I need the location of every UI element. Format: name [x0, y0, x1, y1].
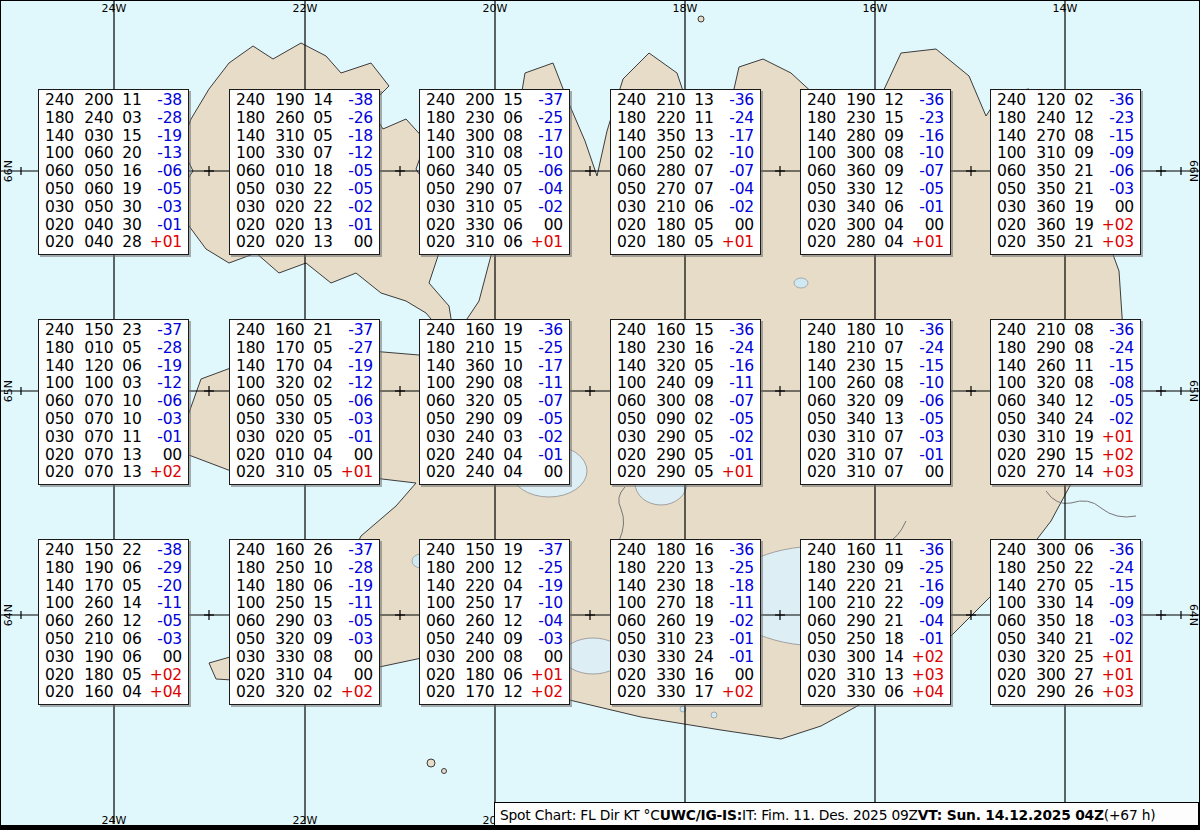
temperature-c: -24 — [720, 110, 754, 128]
wind-direction: 070 — [82, 393, 113, 411]
wind-direction: 270 — [1034, 128, 1065, 146]
flight-level: 020 — [45, 667, 76, 685]
flight-level: 140 — [45, 358, 76, 376]
level-row: 03031007-03 — [807, 429, 944, 447]
level-row: 14022004-19 — [426, 578, 563, 596]
wind-direction: 180 — [273, 578, 304, 596]
level-row: 24018010-36 — [807, 322, 944, 340]
temperature-c: -27 — [339, 340, 373, 358]
temperature-c: -15 — [1100, 358, 1134, 376]
temperature-c: -10 — [910, 375, 944, 393]
wind-direction: 200 — [463, 560, 494, 578]
wind-speed-kt: 13 — [311, 234, 333, 252]
flight-level: 050 — [236, 631, 267, 649]
flight-level: 180 — [236, 110, 267, 128]
wind-direction: 240 — [654, 375, 685, 393]
wind-direction: 300 — [844, 145, 875, 163]
wind-direction: 190 — [273, 92, 304, 110]
wind-direction: 230 — [844, 358, 875, 376]
wind-speed-kt: 28 — [120, 234, 142, 252]
wind-speed-kt: 06 — [692, 199, 714, 217]
level-row: 02029005-01 — [617, 447, 754, 465]
level-row: 03024003-02 — [426, 429, 563, 447]
temperature-c: -02 — [1100, 411, 1134, 429]
wind-direction: 220 — [654, 110, 685, 128]
wind-direction: 210 — [463, 340, 494, 358]
spot-chart-canvas: 24W24W22W22W20W20W18W18W16W16W14W14W66N6… — [0, 0, 1200, 830]
station-table-r1c5: 24019012-3618023015-2314028009-161003000… — [800, 89, 951, 255]
temperature-c: -02 — [720, 613, 754, 631]
flight-level: 020 — [997, 217, 1028, 235]
wind-direction: 160 — [844, 542, 875, 560]
temperature-c: +03 — [1100, 234, 1134, 252]
wind-speed-kt: 26 — [311, 542, 333, 560]
wind-speed-kt: 10 — [501, 358, 523, 376]
wind-direction: 310 — [273, 667, 304, 685]
wind-speed-kt: 05 — [692, 464, 714, 482]
temperature-c: -01 — [720, 649, 754, 667]
wind-speed-kt: 06 — [120, 649, 142, 667]
level-row: 18024012-23 — [997, 110, 1134, 128]
level-row: 18022013-25 — [617, 560, 754, 578]
flight-level: 240 — [807, 322, 838, 340]
wind-direction: 160 — [273, 322, 304, 340]
level-row: 06005005-06 — [236, 393, 373, 411]
level-row: 02029026+03 — [997, 684, 1134, 702]
flight-level: 140 — [807, 128, 838, 146]
temperature-c: -38 — [148, 92, 182, 110]
flight-level: 020 — [807, 234, 838, 252]
level-row: 14023018-18 — [617, 578, 754, 596]
wind-speed-kt: 10 — [120, 393, 142, 411]
wind-speed-kt: 03 — [120, 375, 142, 393]
wind-speed-kt: 14 — [120, 595, 142, 613]
wind-speed-kt: 07 — [311, 145, 333, 163]
level-row: 03033024-01 — [617, 649, 754, 667]
flight-level: 240 — [997, 542, 1028, 560]
flight-level: 240 — [236, 322, 267, 340]
flight-level: 030 — [807, 649, 838, 667]
flight-level: 140 — [426, 128, 457, 146]
wind-speed-kt: 09 — [501, 631, 523, 649]
flight-level: 100 — [617, 595, 648, 613]
flight-level: 020 — [807, 684, 838, 702]
level-row: 14003015-19 — [45, 128, 182, 146]
wind-direction: 210 — [844, 595, 875, 613]
level-row: 10026014-11 — [45, 595, 182, 613]
wind-direction: 180 — [654, 234, 685, 252]
temperature-c: -36 — [720, 542, 754, 560]
flight-level: 060 — [45, 163, 76, 181]
flight-level: 030 — [236, 199, 267, 217]
temperature-c: -15 — [1100, 128, 1134, 146]
wind-speed-kt: 21 — [1072, 163, 1094, 181]
level-row: 0200201300 — [236, 234, 373, 252]
level-row: 02024004-01 — [426, 447, 563, 465]
flight-level: 020 — [426, 684, 457, 702]
flight-level: 140 — [997, 358, 1028, 376]
wind-speed-kt: 12 — [501, 613, 523, 631]
wind-speed-kt: 13 — [882, 411, 904, 429]
wind-direction: 300 — [463, 128, 494, 146]
flight-level: 020 — [426, 464, 457, 482]
temperature-c: -23 — [1100, 110, 1134, 128]
level-row: 24015022-38 — [45, 542, 182, 560]
temperature-c: +01 — [529, 667, 563, 685]
wind-direction: 180 — [82, 667, 113, 685]
temperature-c: -36 — [1100, 542, 1134, 560]
wind-direction: 330 — [1034, 595, 1065, 613]
wind-speed-kt: 02 — [692, 411, 714, 429]
level-row: 10030008-10 — [807, 145, 944, 163]
wind-speed-kt: 07 — [882, 447, 904, 465]
station-table-r1c3: 24020015-3718023006-2514030008-171003100… — [419, 89, 570, 255]
wind-speed-kt: 21 — [882, 613, 904, 631]
latitude-label-left: 66N — [3, 156, 15, 186]
level-row: 24016019-36 — [426, 322, 563, 340]
level-row: 05031023-01 — [617, 631, 754, 649]
wind-direction: 290 — [654, 429, 685, 447]
wind-direction: 160 — [82, 684, 113, 702]
flight-level: 240 — [617, 542, 648, 560]
temperature-c: -16 — [910, 578, 944, 596]
wind-direction: 200 — [463, 92, 494, 110]
level-row: 24016011-36 — [807, 542, 944, 560]
wind-speed-kt: 07 — [692, 163, 714, 181]
wind-direction: 290 — [654, 447, 685, 465]
level-row: 18021015-25 — [426, 340, 563, 358]
level-row: 18001005-28 — [45, 340, 182, 358]
bottom-border-strip — [1, 825, 1199, 829]
flight-level: 140 — [236, 358, 267, 376]
level-row: 05034013-05 — [807, 411, 944, 429]
flight-level: 050 — [45, 181, 76, 199]
flight-level: 020 — [997, 234, 1028, 252]
wind-direction: 290 — [654, 464, 685, 482]
wind-speed-kt: 21 — [882, 578, 904, 596]
flight-level: 020 — [236, 684, 267, 702]
wind-direction: 330 — [654, 667, 685, 685]
temperature-c: -25 — [720, 560, 754, 578]
flight-level: 240 — [236, 542, 267, 560]
wind-speed-kt: 15 — [311, 595, 333, 613]
wind-direction: 330 — [844, 181, 875, 199]
temperature-c: 00 — [720, 667, 754, 685]
flight-level: 030 — [997, 649, 1028, 667]
flight-level: 020 — [617, 234, 648, 252]
wind-speed-kt: 04 — [882, 234, 904, 252]
flight-level: 100 — [236, 595, 267, 613]
wind-direction: 180 — [654, 542, 685, 560]
wind-direction: 260 — [82, 613, 113, 631]
wind-direction: 050 — [82, 163, 113, 181]
wind-speed-kt: 16 — [120, 163, 142, 181]
wind-speed-kt: 07 — [501, 181, 523, 199]
temperature-c: -02 — [339, 199, 373, 217]
level-row: 14018006-19 — [236, 578, 373, 596]
flight-level: 050 — [236, 411, 267, 429]
wind-direction: 320 — [463, 393, 494, 411]
temperature-c: +02 — [1100, 217, 1134, 235]
wind-speed-kt: 05 — [692, 217, 714, 235]
wind-speed-kt: 15 — [882, 358, 904, 376]
wind-direction: 350 — [1034, 613, 1065, 631]
wind-speed-kt: 12 — [1072, 393, 1094, 411]
temperature-c: -36 — [1100, 322, 1134, 340]
wind-speed-kt: 08 — [501, 375, 523, 393]
wind-direction: 230 — [463, 110, 494, 128]
wind-speed-kt: 19 — [501, 322, 523, 340]
temperature-c: -19 — [529, 578, 563, 596]
wind-direction: 360 — [1034, 199, 1065, 217]
level-row: 03002022-02 — [236, 199, 373, 217]
wind-speed-kt: 14 — [1072, 595, 1094, 613]
wind-direction: 340 — [1034, 411, 1065, 429]
level-row: 0302000800 — [426, 649, 563, 667]
level-row: 10032008-08 — [997, 375, 1134, 393]
flight-level: 050 — [45, 411, 76, 429]
flight-level: 050 — [807, 181, 838, 199]
flight-level: 030 — [807, 429, 838, 447]
temperature-c: 00 — [339, 234, 373, 252]
level-row: 02018006+01 — [426, 667, 563, 685]
wind-direction: 330 — [844, 684, 875, 702]
wind-speed-kt: 06 — [120, 631, 142, 649]
flight-level: 050 — [426, 631, 457, 649]
wind-speed-kt: 27 — [1072, 667, 1094, 685]
temperature-c: 00 — [529, 649, 563, 667]
status-segment: IT: Fim. 11. Des. 2025 09Z — [742, 807, 918, 823]
temperature-c: +01 — [1100, 667, 1134, 685]
flight-level: 020 — [617, 667, 648, 685]
flight-level: 050 — [617, 181, 648, 199]
flight-level: 060 — [807, 613, 838, 631]
wind-speed-kt: 13 — [692, 128, 714, 146]
temperature-c: -02 — [1100, 631, 1134, 649]
level-row: 24015023-37 — [45, 322, 182, 340]
level-row: 18025022-24 — [997, 560, 1134, 578]
wind-speed-kt: 03 — [311, 613, 333, 631]
wind-speed-kt: 10 — [120, 411, 142, 429]
temperature-c: -03 — [1100, 613, 1134, 631]
level-row: 10024009-11 — [617, 375, 754, 393]
temperature-c: -36 — [720, 92, 754, 110]
temperature-c: -18 — [720, 578, 754, 596]
temperature-c: -08 — [1100, 375, 1134, 393]
wind-direction: 290 — [1034, 684, 1065, 702]
wind-direction: 320 — [273, 375, 304, 393]
flight-level: 020 — [236, 447, 267, 465]
flight-level: 060 — [617, 613, 648, 631]
wind-direction: 180 — [844, 322, 875, 340]
level-row: 10026008-10 — [807, 375, 944, 393]
temperature-c: +04 — [910, 684, 944, 702]
wind-speed-kt: 12 — [501, 560, 523, 578]
flight-level: 020 — [426, 217, 457, 235]
wind-speed-kt: 12 — [882, 181, 904, 199]
level-row: 05027007-04 — [617, 181, 754, 199]
latitude-label-right: 64N — [1187, 600, 1199, 630]
temperature-c: -17 — [529, 358, 563, 376]
level-row: 05029007-04 — [426, 181, 563, 199]
flight-level: 030 — [426, 649, 457, 667]
flight-level: 140 — [236, 578, 267, 596]
flight-level: 140 — [807, 358, 838, 376]
latitude-label-left: 65N — [3, 376, 15, 406]
wind-speed-kt: 14 — [311, 92, 333, 110]
wind-speed-kt: 06 — [311, 578, 333, 596]
level-row: 0203301600 — [617, 667, 754, 685]
wind-direction: 290 — [273, 613, 304, 631]
temperature-c: -25 — [529, 560, 563, 578]
flight-level: 140 — [617, 128, 648, 146]
temperature-c: -11 — [148, 595, 182, 613]
flight-level: 020 — [426, 447, 457, 465]
wind-direction: 210 — [1034, 322, 1065, 340]
station-table-r3c2: 24016026-3718025010-2814018006-191002501… — [229, 539, 380, 705]
level-row: 05006019-05 — [45, 181, 182, 199]
flight-level: 050 — [997, 631, 1028, 649]
status-segment: Spot Chart: FL Dir KT °C — [500, 807, 660, 823]
wind-speed-kt: 08 — [1072, 375, 1094, 393]
wind-speed-kt: 13 — [120, 464, 142, 482]
flight-level: 060 — [236, 393, 267, 411]
latitude-label-right: 65N — [1187, 376, 1199, 406]
wind-direction: 340 — [844, 411, 875, 429]
wind-direction: 150 — [82, 322, 113, 340]
level-row: 06026019-02 — [617, 613, 754, 631]
wind-direction: 220 — [463, 578, 494, 596]
wind-direction: 240 — [463, 429, 494, 447]
temperature-c: +01 — [1100, 649, 1134, 667]
level-row: 14031005-18 — [236, 128, 373, 146]
wind-speed-kt: 18 — [1072, 613, 1094, 631]
level-row: 14027005-15 — [997, 578, 1134, 596]
wind-direction: 320 — [1034, 649, 1065, 667]
station-table-r2c6: 24021008-3618029008-2414026011-151003200… — [990, 319, 1141, 485]
flight-level: 060 — [426, 393, 457, 411]
flight-level: 030 — [997, 199, 1028, 217]
level-row: 06005016-06 — [45, 163, 182, 181]
level-row: 14012006-19 — [45, 358, 182, 376]
level-row: 18020012-25 — [426, 560, 563, 578]
flight-level: 050 — [807, 411, 838, 429]
flight-level: 060 — [807, 393, 838, 411]
wind-speed-kt: 05 — [501, 393, 523, 411]
level-row: 24020011-38 — [45, 92, 182, 110]
wind-speed-kt: 20 — [120, 145, 142, 163]
flight-level: 140 — [807, 578, 838, 596]
wind-direction: 040 — [82, 234, 113, 252]
flight-level: 030 — [236, 429, 267, 447]
wind-direction: 270 — [654, 181, 685, 199]
level-row: 24016015-36 — [617, 322, 754, 340]
level-row: 24012002-36 — [997, 92, 1134, 110]
wind-speed-kt: 15 — [501, 92, 523, 110]
flight-level: 020 — [997, 464, 1028, 482]
wind-direction: 020 — [273, 199, 304, 217]
level-row: 14017004-19 — [236, 358, 373, 376]
level-row: 18022011-24 — [617, 110, 754, 128]
level-row: 03031019+01 — [997, 429, 1134, 447]
wind-direction: 260 — [463, 613, 494, 631]
status-segment: UWC/IG-IS: — [660, 807, 742, 823]
longitude-label-top: 18W — [668, 3, 702, 15]
temperature-c: -01 — [339, 217, 373, 235]
wind-direction: 310 — [463, 199, 494, 217]
wind-direction: 010 — [273, 447, 304, 465]
wind-speed-kt: 09 — [882, 163, 904, 181]
wind-speed-kt: 05 — [692, 234, 714, 252]
wind-speed-kt: 19 — [501, 542, 523, 560]
flight-level: 140 — [997, 578, 1028, 596]
station-table-r2c4: 24016015-3618023016-2414032005-161002400… — [610, 319, 761, 485]
station-table-r3c5: 24016011-3618023009-2514022021-161002102… — [800, 539, 951, 705]
level-row: 10031008-10 — [426, 145, 563, 163]
wind-speed-kt: 05 — [311, 429, 333, 447]
wind-direction: 090 — [654, 411, 685, 429]
temperature-c: +02 — [720, 684, 754, 702]
level-row: 06007010-06 — [45, 393, 182, 411]
level-row: 18029008-24 — [997, 340, 1134, 358]
wind-speed-kt: 05 — [692, 447, 714, 465]
station-table-r2c3: 24016019-3618021015-2514036010-171002900… — [419, 319, 570, 485]
temperature-c: -12 — [148, 375, 182, 393]
wind-direction: 340 — [1034, 631, 1065, 649]
flight-level: 020 — [617, 217, 648, 235]
wind-speed-kt: 30 — [120, 199, 142, 217]
wind-direction: 260 — [1034, 358, 1065, 376]
flight-level: 060 — [45, 393, 76, 411]
level-row: 05032009-03 — [236, 631, 373, 649]
level-row: 14026011-15 — [997, 358, 1134, 376]
level-row: 10032002-12 — [236, 375, 373, 393]
wind-speed-kt: 12 — [1072, 110, 1094, 128]
temperature-c: -17 — [720, 128, 754, 146]
wind-direction: 020 — [273, 234, 304, 252]
temperature-c: -15 — [910, 358, 944, 376]
wind-speed-kt: 06 — [882, 684, 904, 702]
temperature-c: -01 — [529, 447, 563, 465]
wind-direction: 250 — [273, 595, 304, 613]
wind-direction: 040 — [82, 217, 113, 235]
wind-direction: 010 — [273, 163, 304, 181]
flight-level: 180 — [236, 560, 267, 578]
flight-level: 030 — [426, 429, 457, 447]
wind-direction: 300 — [1034, 542, 1065, 560]
flight-level: 020 — [807, 667, 838, 685]
wind-speed-kt: 10 — [882, 322, 904, 340]
wind-direction: 320 — [273, 631, 304, 649]
wind-speed-kt: 11 — [1072, 358, 1094, 376]
flight-level: 240 — [45, 542, 76, 560]
wind-speed-kt: 19 — [1072, 429, 1094, 447]
level-row: 02029015+02 — [997, 447, 1134, 465]
temperature-c: +02 — [148, 667, 182, 685]
wind-speed-kt: 06 — [120, 560, 142, 578]
temperature-c: -07 — [720, 393, 754, 411]
temperature-c: +03 — [910, 667, 944, 685]
wind-speed-kt: 02 — [311, 684, 333, 702]
temperature-c: -03 — [1100, 181, 1134, 199]
level-row: 24021013-36 — [617, 92, 754, 110]
temperature-c: -36 — [1100, 92, 1134, 110]
wind-direction: 240 — [82, 110, 113, 128]
level-row: 02036019+02 — [997, 217, 1134, 235]
wind-speed-kt: 08 — [1072, 128, 1094, 146]
temperature-c: -19 — [148, 128, 182, 146]
level-row: 03029005-02 — [617, 429, 754, 447]
